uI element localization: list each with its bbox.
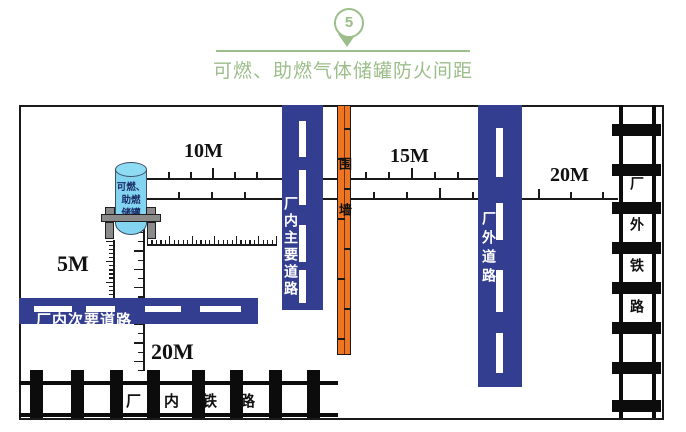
ruler-tick [134, 269, 143, 270]
ruler-tick [178, 192, 180, 198]
ruler-tick [134, 324, 143, 325]
ruler-tick [249, 240, 250, 244]
ruler-tick [234, 172, 236, 178]
external-railway-label: 厂外铁路 [629, 176, 644, 340]
ruler-tick [457, 172, 459, 178]
road-dash [299, 270, 306, 303]
ruler-tick [183, 240, 184, 244]
railway-tie [612, 124, 661, 136]
ruler-tick [138, 260, 143, 261]
ruler-tick [151, 240, 152, 244]
ruler-tick [570, 192, 572, 198]
wall-segment-mark [344, 308, 351, 310]
ruler-tick [406, 192, 408, 198]
distance-label-20m-right: 20M [550, 164, 589, 187]
ruler-tick [134, 250, 143, 251]
ruler-tick [254, 240, 255, 244]
ruler-tick [205, 240, 206, 244]
ruler-tick [109, 294, 113, 295]
ruler-tick [538, 189, 540, 198]
ruler-tick [138, 333, 143, 334]
ruler-tick [178, 240, 179, 244]
ruler-tick [169, 236, 170, 244]
tank-label-line2: 助燃 [112, 194, 150, 207]
ruler-tick [472, 192, 474, 198]
ruler-tick [373, 192, 375, 198]
title-divider [216, 50, 470, 52]
ruler-tick [211, 192, 213, 198]
ruler-tick [263, 240, 264, 244]
ruler-line-second [147, 198, 618, 200]
ruler-line-fine [147, 244, 277, 246]
railway-tie [71, 370, 84, 418]
ruler-line-5m [113, 240, 115, 298]
gas-storage-tank-top [115, 162, 147, 177]
wall-segment-mark [344, 128, 351, 130]
ruler-tick [212, 168, 214, 178]
railway-tie [612, 400, 661, 412]
ruler-tick [209, 240, 210, 244]
ruler-tick [106, 241, 113, 242]
ruler-tick [245, 240, 246, 244]
distance-label-5m: 5M [57, 251, 89, 277]
internal-main-road-label: 厂内主要道路 [284, 196, 298, 298]
road-dash [200, 306, 241, 312]
internal-railway-rail-top [19, 381, 338, 385]
ruler-tick [134, 361, 143, 362]
wall-segment-mark [338, 278, 345, 280]
ruler-tick [602, 192, 604, 198]
road-dash [496, 203, 503, 240]
distance-label-20m-bottom: 20M [151, 339, 194, 365]
ruler-tick [218, 240, 219, 244]
ruler-tick [109, 253, 113, 254]
diagram-page: 5 可燃、助燃气体储罐防火间距 厂内主要道路 围墙 厂外道路 厂外铁路 厂内次要… [0, 0, 686, 432]
ruler-tick [236, 236, 237, 244]
ruler-tick [388, 172, 390, 178]
ruler-tick [109, 290, 113, 291]
road-dash [496, 128, 503, 177]
railway-tie [612, 362, 661, 374]
railway-tie [30, 370, 43, 418]
railway-tie [307, 370, 320, 418]
ruler-tick [174, 240, 175, 244]
road-dash [496, 270, 503, 312]
ruler-tick [168, 172, 170, 178]
road-dash [496, 333, 503, 373]
tank-support-beam [101, 214, 161, 222]
ruler-tick [106, 282, 113, 283]
ruler-tick [258, 236, 259, 244]
ruler-tick [165, 240, 166, 244]
internal-secondary-road-label: 厂内次要道路 [36, 309, 132, 330]
ruler-tick [109, 265, 113, 266]
section-number-badge: 5 [334, 8, 364, 38]
ruler-tick [138, 370, 143, 371]
ruler-tick [109, 249, 113, 250]
ruler-tick [192, 236, 193, 244]
ruler-tick [411, 168, 413, 178]
boundary-wall-label: 围墙 [337, 157, 351, 249]
road-dash [299, 170, 306, 205]
ruler-tick [267, 240, 268, 244]
ruler-tick [240, 240, 241, 244]
road-dash [299, 121, 306, 157]
ruler-tick [109, 245, 113, 246]
distance-label-15m: 15M [390, 145, 429, 168]
ruler-tick [190, 172, 192, 178]
ruler-tick [434, 172, 436, 178]
ruler-tick [439, 188, 441, 198]
railway-tie [612, 164, 661, 176]
ruler-tick [109, 269, 113, 270]
ruler-tick [134, 287, 143, 288]
external-road-label: 厂外道路 [482, 211, 496, 287]
distance-label-10m: 10M [184, 140, 223, 163]
ruler-tick [200, 240, 201, 244]
road-dash [299, 225, 306, 262]
ruler-tick [134, 342, 143, 343]
ruler-tick [214, 236, 215, 244]
ruler-tick [244, 192, 246, 198]
ruler-tick [256, 172, 258, 178]
railway-tie [110, 370, 123, 418]
internal-railway-rail-bottom [19, 413, 338, 417]
ruler-tick [365, 172, 367, 178]
ruler-tick [227, 240, 228, 244]
tank-label-line1: 可燃、 [112, 181, 150, 194]
ruler-tick [138, 241, 143, 242]
page-title: 可燃、助燃气体储罐防火间距 [0, 56, 686, 83]
ruler-tick [109, 273, 113, 274]
ruler-tick [223, 240, 224, 244]
ruler-tick [109, 257, 113, 258]
ruler-tick [106, 261, 113, 262]
ruler-tick [109, 277, 113, 278]
tank-support-leg-right [147, 222, 156, 239]
ruler-tick [276, 236, 277, 244]
ruler-tick [187, 240, 188, 244]
tank-support-leg-left [105, 222, 114, 239]
internal-railway-label: 厂内铁路 [126, 390, 278, 411]
ruler-tick [272, 240, 273, 244]
ruler-tick [109, 286, 113, 287]
wall-segment-mark [338, 338, 345, 340]
ruler-tick [196, 240, 197, 244]
ruler-tick [138, 278, 143, 279]
ruler-tick [232, 240, 233, 244]
ruler-tick [138, 352, 143, 353]
ruler-tick [156, 240, 157, 244]
ruler-tick [160, 240, 161, 244]
road-dash [145, 306, 181, 312]
